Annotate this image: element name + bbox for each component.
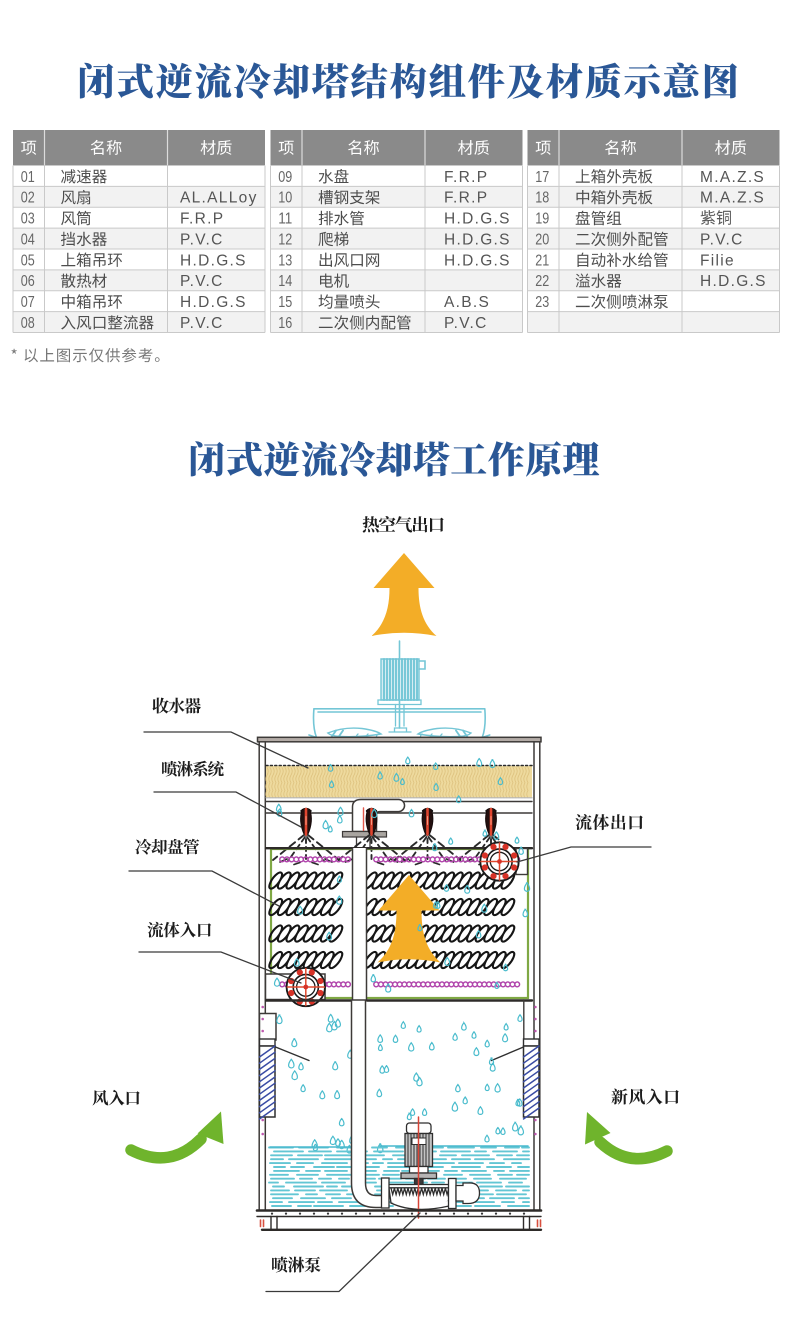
svg-text:02: 02 (21, 190, 35, 207)
svg-text:03: 03 (21, 211, 35, 228)
svg-text:18: 18 (535, 190, 549, 207)
svg-text:23: 23 (535, 294, 549, 311)
svg-text:09: 09 (278, 169, 292, 186)
svg-text:P.V.C: P.V.C (180, 231, 224, 248)
svg-text:04: 04 (21, 231, 35, 248)
svg-text:H.D.G.S: H.D.G.S (180, 252, 247, 269)
svg-text:21: 21 (535, 252, 549, 269)
svg-text:10: 10 (278, 190, 292, 207)
svg-text:P.V.C: P.V.C (180, 315, 224, 332)
svg-text:19: 19 (535, 211, 549, 228)
svg-text:12: 12 (278, 231, 292, 248)
svg-text:M.A.Z.S: M.A.Z.S (700, 169, 765, 186)
svg-text:17: 17 (535, 169, 549, 186)
svg-text:F.R.P: F.R.P (444, 190, 488, 207)
svg-text:01: 01 (21, 169, 35, 186)
svg-text:16: 16 (278, 315, 292, 332)
svg-text:Filie: Filie (700, 252, 735, 269)
svg-text:M.A.Z.S: M.A.Z.S (700, 190, 765, 207)
svg-text:06: 06 (21, 273, 35, 290)
svg-text:AL.ALLoy: AL.ALLoy (180, 190, 258, 207)
svg-text:H.D.G.S: H.D.G.S (700, 273, 767, 290)
svg-text:P.V.C: P.V.C (180, 273, 224, 290)
svg-text:H.D.G.S: H.D.G.S (444, 252, 511, 269)
svg-text:A.B.S: A.B.S (444, 294, 490, 311)
svg-text:H.D.G.S: H.D.G.S (444, 211, 511, 228)
svg-text:H.D.G.S: H.D.G.S (444, 231, 511, 248)
svg-text:H.D.G.S: H.D.G.S (180, 294, 247, 311)
svg-text:22: 22 (535, 273, 549, 290)
svg-text:14: 14 (278, 273, 292, 290)
svg-text:13: 13 (278, 252, 292, 269)
svg-text:20: 20 (535, 231, 549, 248)
svg-text:F.R.P: F.R.P (180, 211, 224, 228)
svg-text:08: 08 (21, 315, 35, 332)
svg-text:07: 07 (21, 294, 35, 311)
svg-text:F.R.P: F.R.P (444, 169, 488, 186)
svg-text:05: 05 (21, 252, 35, 269)
svg-text:15: 15 (278, 294, 292, 311)
svg-text:P.V.C: P.V.C (700, 231, 744, 248)
svg-text:11: 11 (278, 211, 292, 228)
svg-text:P.V.C: P.V.C (444, 315, 488, 332)
